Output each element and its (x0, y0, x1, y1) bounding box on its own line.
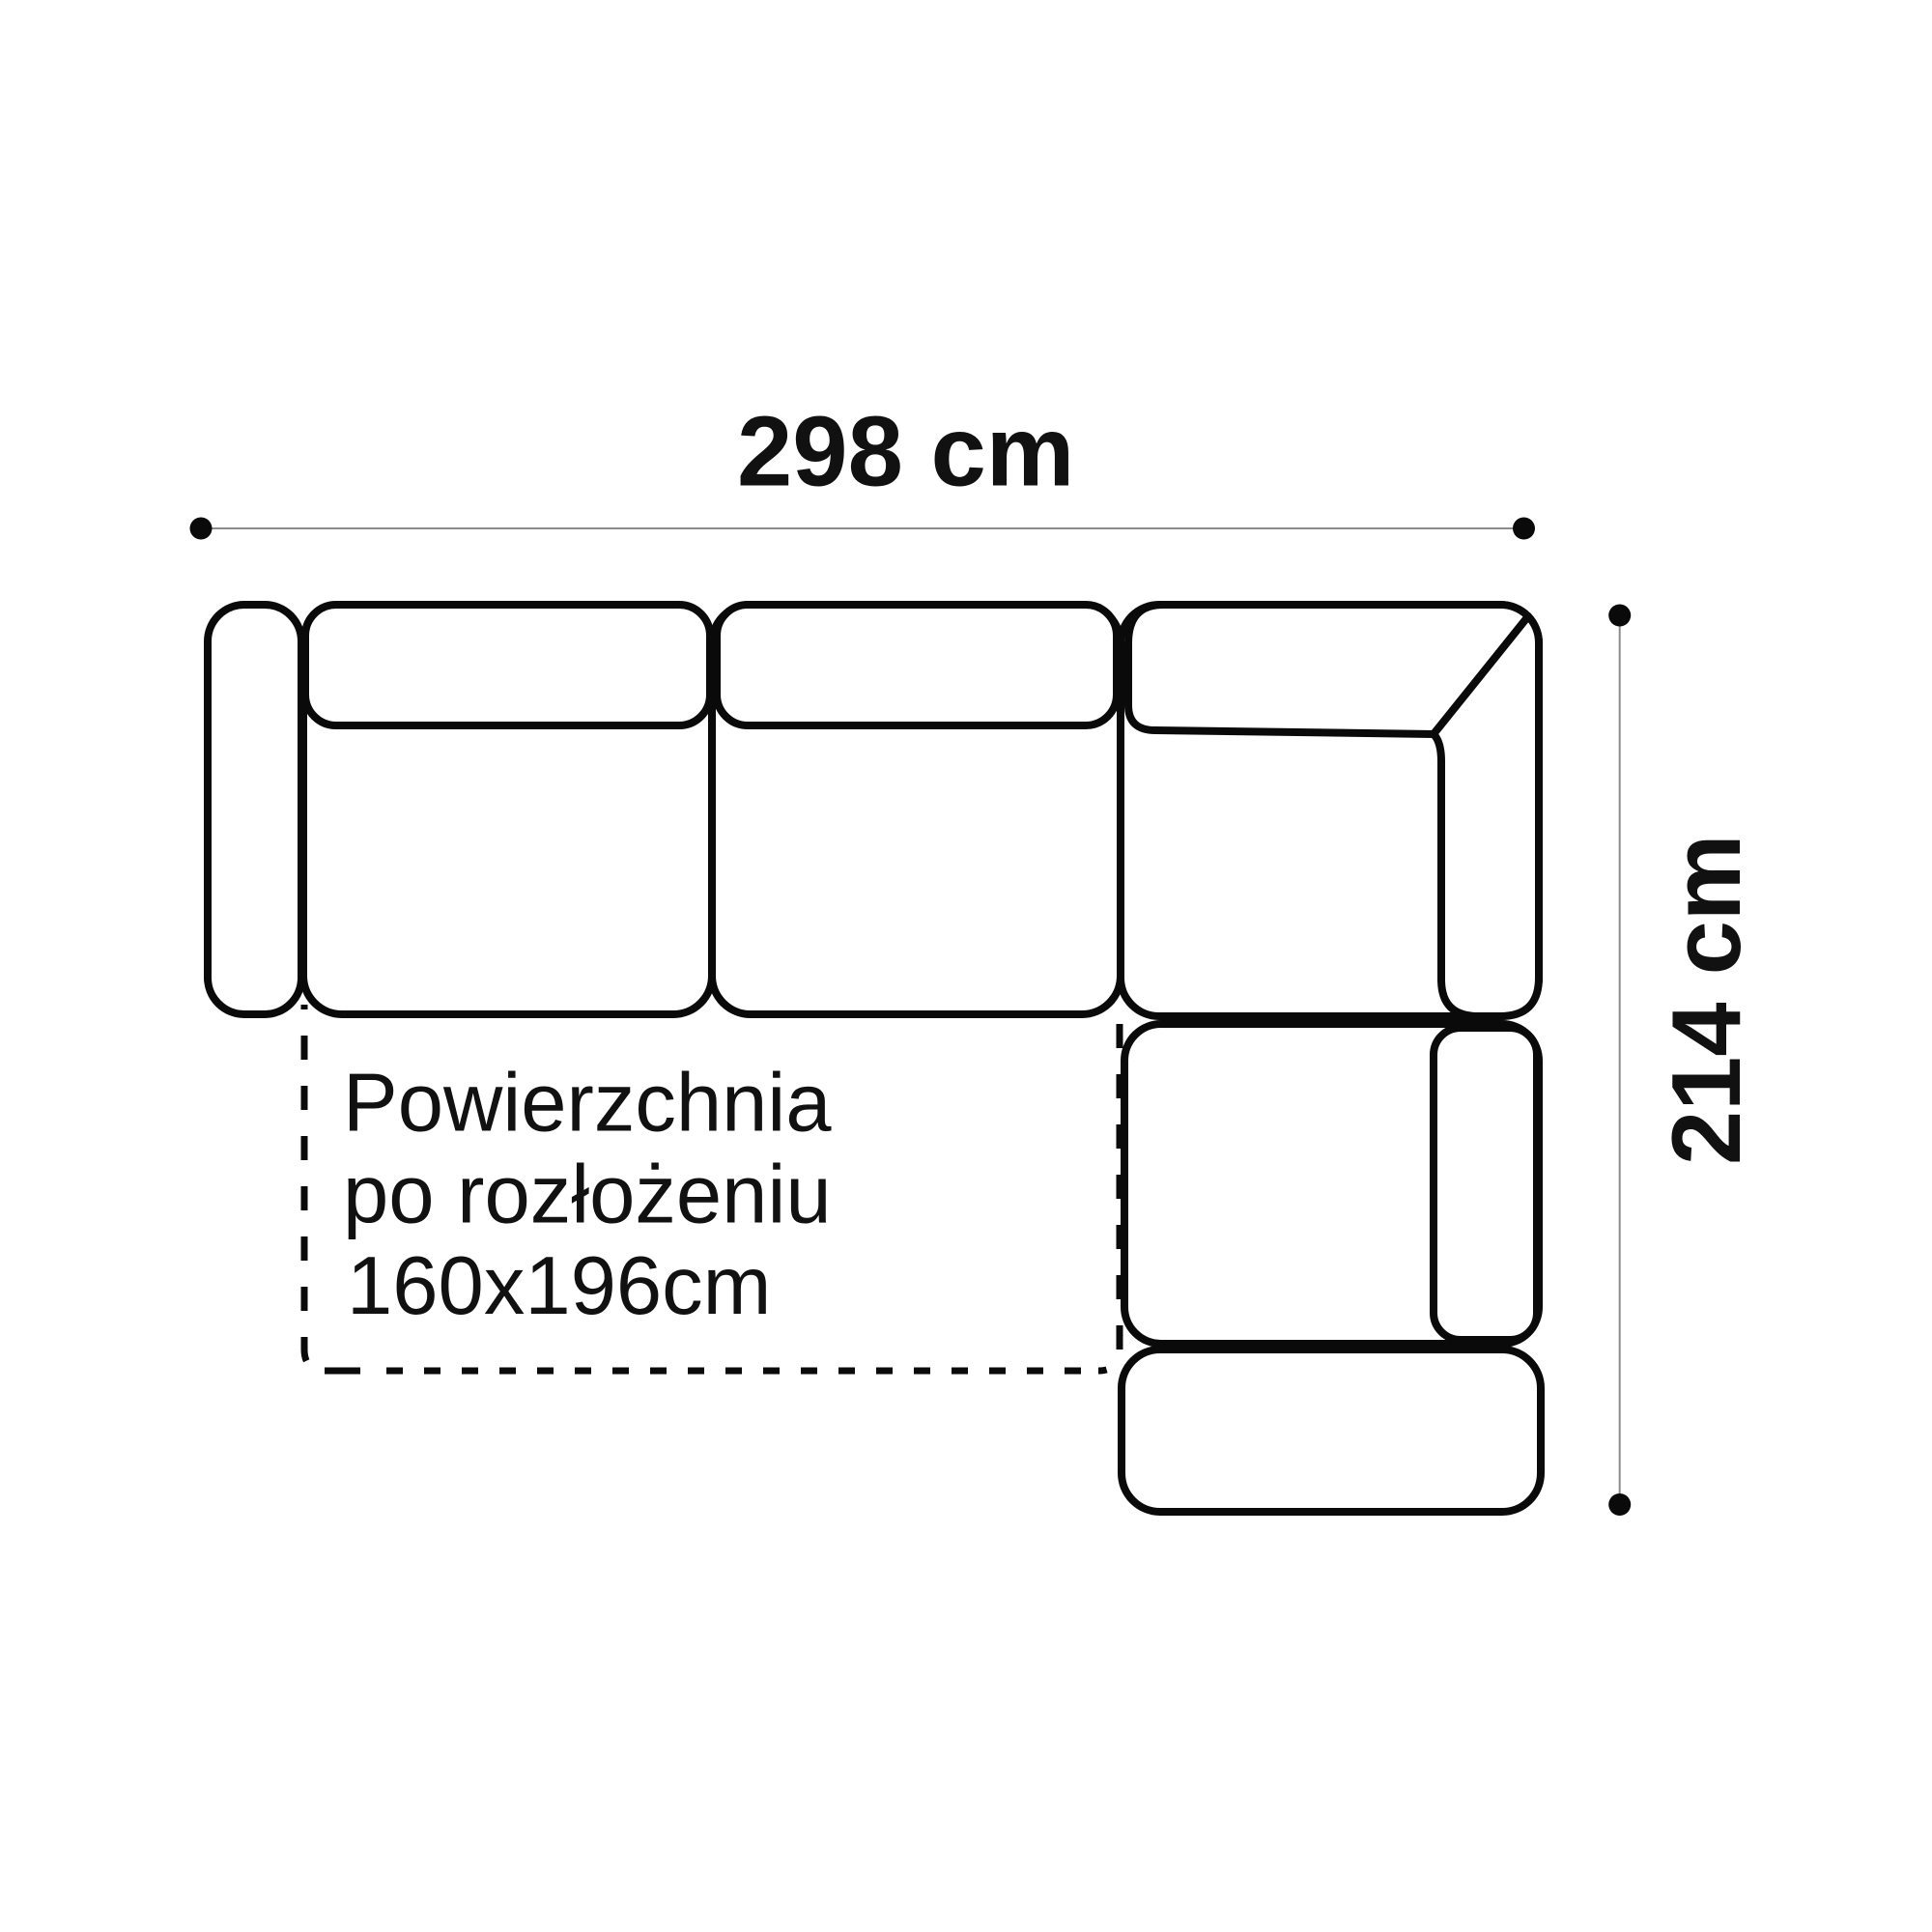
svg-text:160x196cm: 160x196cm (347, 1240, 771, 1332)
svg-text:Powierzchnia: Powierzchnia (343, 1058, 832, 1150)
svg-text:298 cm: 298 cm (737, 396, 1074, 507)
svg-text:po rozłożeniu: po rozłożeniu (343, 1150, 832, 1241)
svg-text:214 cm: 214 cm (1653, 834, 1761, 1165)
